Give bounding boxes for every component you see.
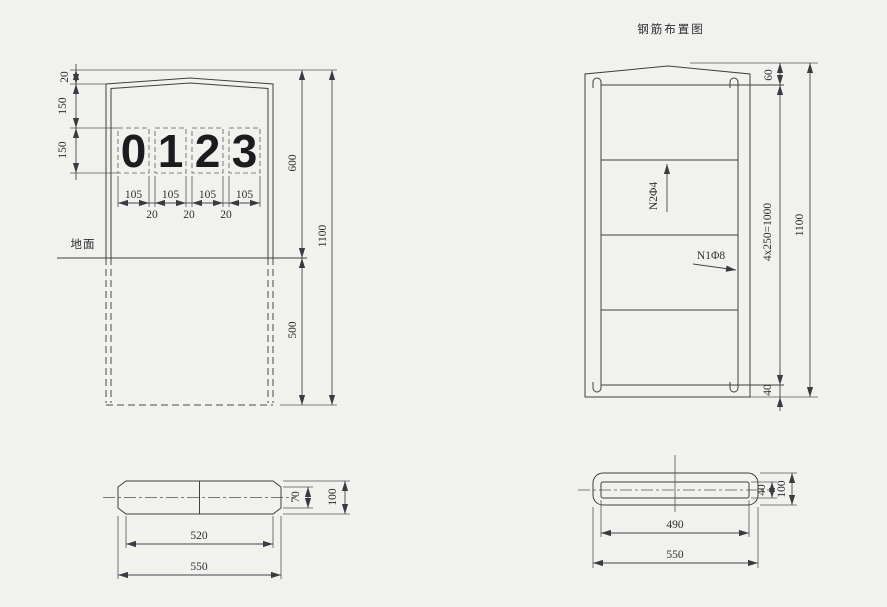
post-buried-hidden-outline	[106, 258, 273, 405]
dim-digit-gap-1: 20	[146, 209, 158, 221]
post-height-dimensions: 600 500 1100	[280, 70, 337, 405]
dim-plan-inner-width: 520	[190, 530, 208, 542]
dim-plan-outer-width: 550	[190, 561, 208, 573]
drawing-canvas: 0 1 2 3 20 150 150 105 105	[0, 0, 887, 607]
drawing-title: 钢筋布置图	[637, 22, 705, 36]
dim-digit-width-3: 105	[199, 189, 217, 201]
dim-digit-width-1: 105	[125, 189, 143, 201]
digit-3: 3	[232, 125, 258, 177]
dim-rebar-total-height: 1100	[794, 213, 806, 236]
dim-digit-width-4: 105	[236, 189, 254, 201]
post-plan-view	[103, 481, 296, 514]
digit-2: 2	[195, 125, 221, 177]
dim-rebar-bottom-cover: 40	[762, 384, 774, 396]
rebar-height-dimensions: 60 4x250=1000 40 1100	[690, 63, 818, 411]
rebar-plan-view	[578, 455, 772, 512]
ground-label: 地面	[71, 238, 96, 251]
digit-width-dimensions: 105 105 105 105 20 20 20	[118, 176, 260, 221]
post-number-digits: 0 1 2 3	[121, 125, 258, 177]
dim-rebar-plan-outer-width: 550	[666, 549, 684, 561]
dim-digit-gap-3: 20	[220, 209, 232, 221]
digit-1: 1	[158, 125, 184, 177]
dim-cap-to-digits: 150	[57, 97, 69, 115]
dim-rebar-plan-inner-width: 490	[666, 519, 684, 531]
dim-plan-inner-height: 70	[290, 491, 302, 503]
dim-top-cap: 20	[59, 71, 71, 83]
digit-0: 0	[121, 125, 147, 177]
rebar-elevation-outline	[585, 66, 750, 397]
rebar-plan-dimensions: 490 550 40 100	[593, 473, 797, 568]
post-plan-dimensions: 520 550 70 100	[118, 481, 350, 579]
stirrup-bar-label: N2Φ4	[648, 182, 660, 210]
dim-rebar-top-cover: 60	[763, 69, 775, 81]
dim-total-height: 1100	[317, 224, 329, 247]
dim-rebar-spacing: 4x250=1000	[762, 203, 774, 261]
dim-below-ground: 500	[287, 321, 299, 339]
dim-rebar-plan-inner-height: 40	[756, 484, 768, 496]
rebar-cage	[593, 78, 784, 392]
dim-plan-outer-height: 100	[327, 488, 339, 506]
dim-rebar-plan-outer-height: 100	[776, 480, 788, 498]
rebar-labels: N2Φ4 N1Φ8	[648, 164, 736, 270]
dim-digit-width-2: 105	[162, 189, 180, 201]
dim-digit-height: 150	[57, 141, 69, 159]
main-bar-label: N1Φ8	[697, 250, 725, 262]
drawing-sheet: 0 1 2 3 20 150 150 105 105	[0, 0, 887, 607]
dim-digit-gap-2: 20	[183, 209, 195, 221]
dim-above-ground: 600	[287, 154, 299, 172]
